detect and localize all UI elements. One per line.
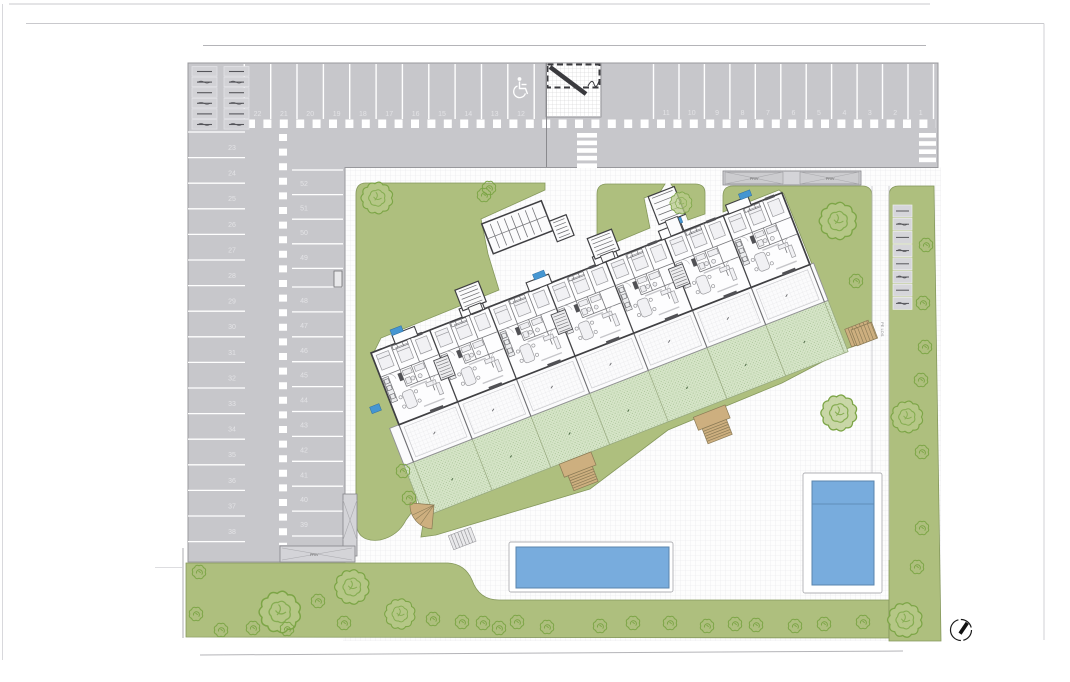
svg-text:28: 28 xyxy=(228,273,236,280)
svg-text:19: 19 xyxy=(333,111,341,118)
svg-text:27: 27 xyxy=(228,247,236,254)
svg-text:30: 30 xyxy=(228,324,236,331)
svg-text:9: 9 xyxy=(715,110,719,117)
svg-text:PE LOS: PE LOS xyxy=(880,322,885,337)
svg-text:PRIV: PRIV xyxy=(310,553,319,557)
svg-text:4: 4 xyxy=(842,110,846,117)
svg-text:35: 35 xyxy=(228,452,236,459)
svg-text:50: 50 xyxy=(300,230,308,237)
svg-text:22: 22 xyxy=(254,111,262,118)
svg-text:1: 1 xyxy=(919,110,923,117)
svg-text:8: 8 xyxy=(741,110,745,117)
svg-text:47: 47 xyxy=(300,323,308,330)
svg-text:20: 20 xyxy=(306,111,314,118)
svg-text:16: 16 xyxy=(412,111,420,118)
svg-text:23: 23 xyxy=(228,145,236,152)
svg-text:44: 44 xyxy=(300,398,308,405)
svg-text:49: 49 xyxy=(300,255,308,262)
svg-text:46: 46 xyxy=(300,348,308,355)
svg-text:37: 37 xyxy=(228,503,236,510)
svg-text:12: 12 xyxy=(517,111,525,118)
svg-text:26: 26 xyxy=(228,222,236,229)
svg-text:13: 13 xyxy=(491,111,499,118)
svg-text:45: 45 xyxy=(300,373,308,380)
svg-text:38: 38 xyxy=(228,529,236,536)
svg-text:17: 17 xyxy=(385,111,393,118)
svg-text:43: 43 xyxy=(300,423,308,430)
svg-text:15: 15 xyxy=(438,111,446,118)
svg-text:33: 33 xyxy=(228,401,236,408)
svg-text:11: 11 xyxy=(663,110,670,117)
svg-text:42: 42 xyxy=(300,447,308,454)
svg-text:24: 24 xyxy=(228,171,236,178)
svg-text:39: 39 xyxy=(300,522,308,529)
svg-text:48: 48 xyxy=(300,298,308,305)
svg-text:2: 2 xyxy=(893,110,897,117)
svg-text:52: 52 xyxy=(300,181,308,188)
svg-text:25: 25 xyxy=(228,196,236,203)
svg-text:51: 51 xyxy=(300,206,308,213)
svg-text:PRIV: PRIV xyxy=(750,177,759,181)
svg-text:32: 32 xyxy=(228,375,236,382)
svg-text:10: 10 xyxy=(688,110,696,117)
svg-text:40: 40 xyxy=(300,497,308,504)
svg-text:36: 36 xyxy=(228,478,236,485)
svg-text:PRIV: PRIV xyxy=(826,177,835,181)
svg-text:3: 3 xyxy=(868,110,872,117)
svg-text:6: 6 xyxy=(792,110,796,117)
svg-text:41: 41 xyxy=(300,472,308,479)
svg-text:14: 14 xyxy=(464,111,472,118)
svg-text:18: 18 xyxy=(359,111,367,118)
svg-text:31: 31 xyxy=(228,350,236,357)
svg-text:7: 7 xyxy=(766,110,770,117)
svg-text:5: 5 xyxy=(817,110,821,117)
svg-text:21: 21 xyxy=(280,111,288,118)
svg-text:29: 29 xyxy=(228,299,236,306)
svg-text:34: 34 xyxy=(228,427,236,434)
